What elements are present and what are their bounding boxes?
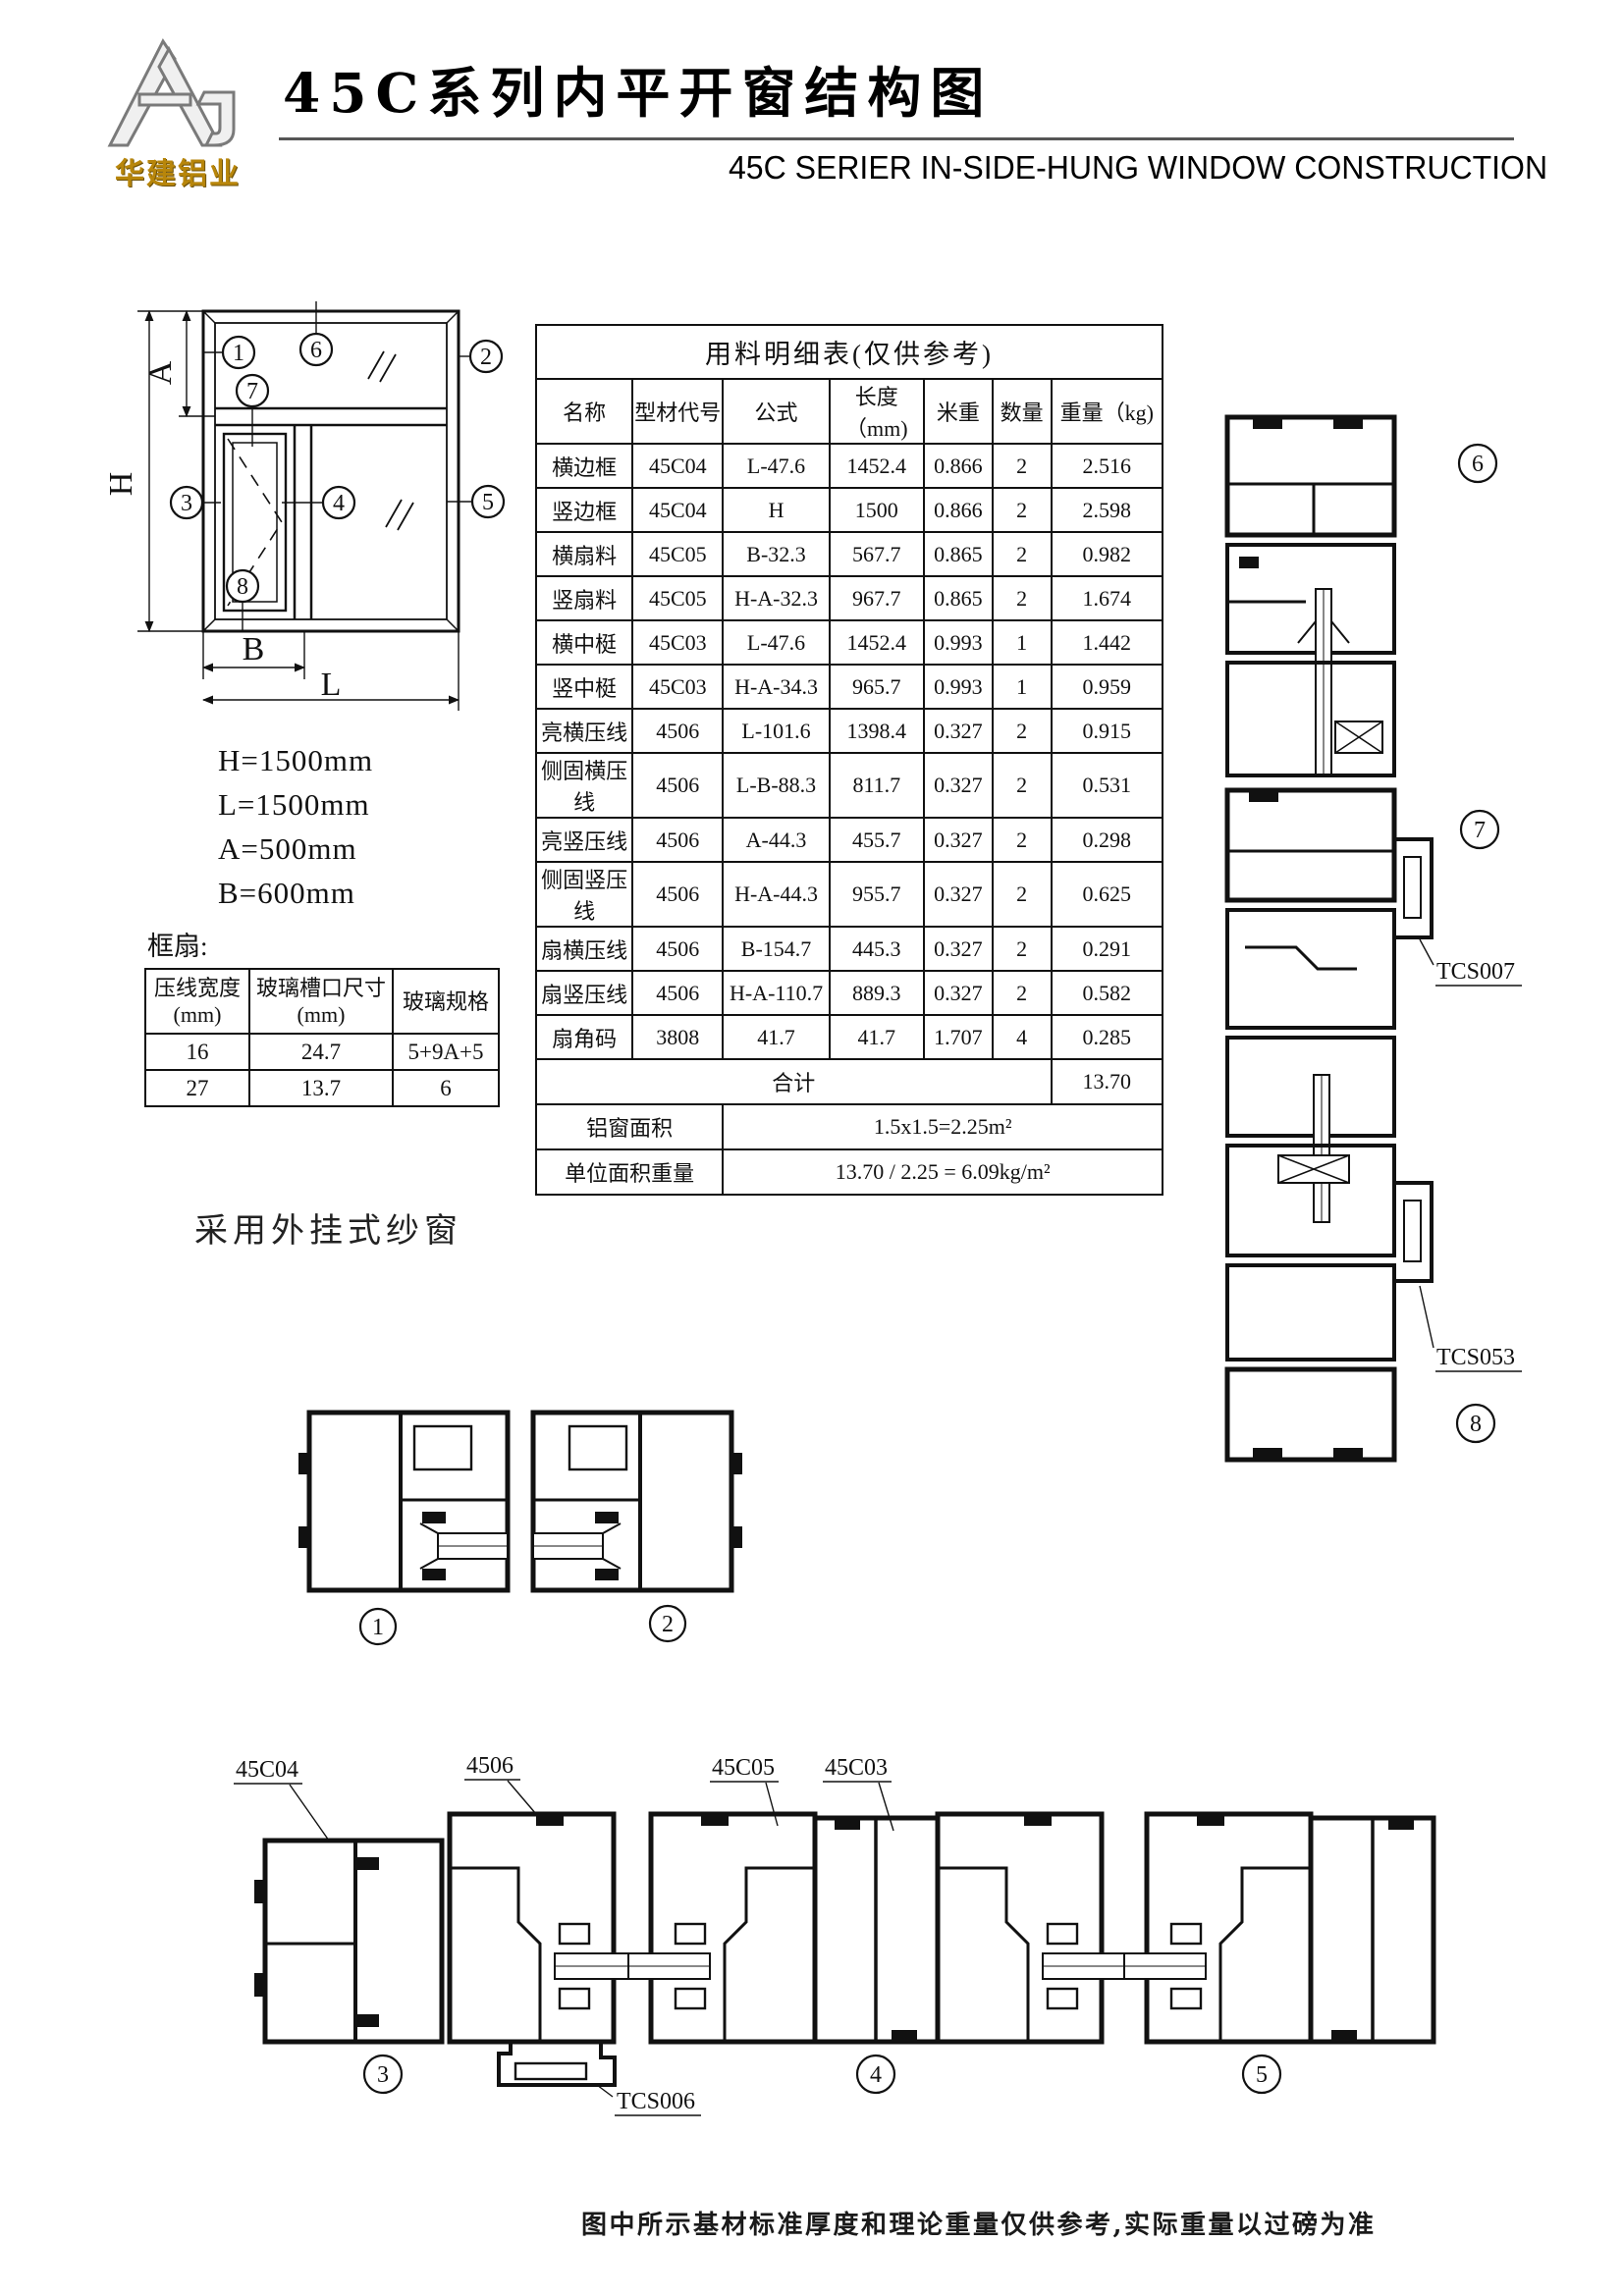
table-cell: L-47.6 [723, 444, 829, 488]
callout-5: 5 [472, 486, 504, 517]
total-value: 13.70 [1052, 1059, 1163, 1104]
table-cell: 45C03 [632, 665, 723, 709]
part-label-45c04: 45C04 [234, 1757, 329, 1841]
table-cell: 2 [993, 488, 1052, 532]
table-cell: 2 [993, 444, 1052, 488]
table-cell: 0.865 [924, 532, 993, 576]
table-cell: B-154.7 [723, 927, 829, 971]
table-row: 扇横压线4506B-154.7445.30.32720.291 [536, 927, 1163, 971]
table-cell: 2.516 [1052, 444, 1163, 488]
table-cell: 2.598 [1052, 488, 1163, 532]
table-cell: H-A-32.3 [723, 576, 829, 620]
materials-table: 用料明细表(仅供参考) 名称 型材代号 公式 长度（mm) 米重 数量 重量（k… [535, 324, 1163, 1196]
svg-text:TCS007: TCS007 [1436, 959, 1515, 985]
svg-text:3: 3 [377, 2062, 389, 2088]
table-cell: 24.7 [249, 1034, 393, 1070]
table-cell: 1398.4 [830, 709, 924, 753]
table-row: 1624.75+9A+5 [145, 1034, 499, 1070]
title-rule [279, 137, 1514, 140]
table-cell: L-B-88.3 [723, 753, 829, 818]
callout-6: 6 [300, 334, 332, 365]
table-cell: 4506 [632, 927, 723, 971]
table-cell: 0.285 [1052, 1015, 1163, 1059]
table-cell: 竖中梃 [536, 665, 632, 709]
table-cell: 1.707 [924, 1015, 993, 1059]
table-cell: 2 [993, 532, 1052, 576]
table-cell: 4 [993, 1015, 1052, 1059]
frame-profile-45c04 [254, 1841, 442, 2042]
company-logo [94, 35, 261, 151]
dim-label-b: B [243, 631, 265, 667]
callout-5-section: 5 [1243, 2056, 1280, 2093]
table-cell: 侧固竖压线 [536, 862, 632, 927]
col-header-weight-per-m: 米重 [924, 379, 993, 444]
table-row: 侧固竖压线4506H-A-44.3955.70.32720.625 [536, 862, 1163, 927]
dim-h-value: H=1500mm [218, 738, 373, 782]
col-header-profile-code: 型材代号 [632, 379, 723, 444]
table-row: 扇角码380841.741.71.70740.285 [536, 1015, 1163, 1059]
table-cell: 1 [993, 665, 1052, 709]
table-row: 亮竖压线4506A-44.3455.70.32720.298 [536, 818, 1163, 862]
svg-text:45C04: 45C04 [236, 1757, 298, 1783]
table-cell: 0.291 [1052, 927, 1163, 971]
callout-4: 4 [323, 487, 354, 518]
table-cell: 0.327 [924, 862, 993, 927]
callout-8: 8 [227, 570, 258, 602]
svg-text:6: 6 [1472, 452, 1484, 477]
table-cell: 横扇料 [536, 532, 632, 576]
table-cell: 13.7 [249, 1070, 393, 1106]
table-cell: 955.7 [830, 862, 924, 927]
svg-text:45C05: 45C05 [712, 1755, 775, 1781]
table-row: 扇竖压线4506H-A-110.7889.30.32720.582 [536, 971, 1163, 1015]
table-cell: 0.582 [1052, 971, 1163, 1015]
table-cell: H-A-44.3 [723, 862, 829, 927]
table-row: 亮横压线4506L-101.61398.40.32720.915 [536, 709, 1163, 753]
callout-1: 1 [223, 337, 254, 368]
svg-text:4: 4 [870, 2062, 882, 2088]
callout-2-section: 2 [650, 1606, 685, 1641]
materials-table-title-row: 用料明细表(仅供参考) [536, 325, 1163, 379]
logo-company-name: 华建铝业 [84, 149, 271, 192]
table-cell: 45C04 [632, 444, 723, 488]
section-6-profile [1227, 417, 1394, 775]
table-cell: 5+9A+5 [393, 1034, 499, 1070]
table-cell: L-101.6 [723, 709, 829, 753]
part-label-tcs053: TCS053 [1435, 1345, 1522, 1371]
frame-sash-table: 压线宽度 (mm) 玻璃槽口尺寸 (mm) 玻璃规格 1624.75+9A+52… [144, 968, 500, 1107]
callout-2: 2 [470, 341, 502, 372]
table-cell: 亮横压线 [536, 709, 632, 753]
svg-text:1: 1 [372, 1615, 384, 1640]
tcs053-bracket [1396, 1183, 1432, 1281]
table-cell: 1.442 [1052, 620, 1163, 665]
materials-table-title: 用料明细表(仅供参考) [536, 325, 1163, 379]
sash-profile-mid [938, 1814, 1124, 2042]
table-cell: 0.982 [1052, 532, 1163, 576]
svg-text:3: 3 [181, 491, 192, 516]
mullion-profile-right [1311, 1818, 1434, 2042]
unit-weight-row: 单位面积重量 13.70 / 2.25 = 6.09kg/m² [536, 1149, 1163, 1195]
horizontal-section-1-2: 1 2 [275, 1394, 785, 1659]
screen-note: 采用外挂式纱窗 [194, 1203, 462, 1252]
table-cell: 0.327 [924, 709, 993, 753]
table-cell: 2 [993, 862, 1052, 927]
table-row: 横扇料45C05B-32.3567.70.86520.982 [536, 532, 1163, 576]
table-cell: 1452.4 [830, 620, 924, 665]
table-cell: 扇竖压线 [536, 971, 632, 1015]
svg-text:2: 2 [480, 345, 492, 370]
horizontal-section-3-4-5: 45C04 4506 45C05 45C03 TCS006 3 4 5 [177, 1747, 1453, 2120]
section-1-profile [298, 1413, 508, 1590]
table-cell: 0.993 [924, 620, 993, 665]
table-cell: 6 [393, 1070, 499, 1106]
table-cell: 45C05 [632, 532, 723, 576]
table-cell: H-A-110.7 [723, 971, 829, 1015]
window-area-row: 铝窗面积 1.5x1.5=2.25m² [536, 1104, 1163, 1149]
part-label-tcs006: TCS006 [615, 2089, 701, 2115]
dim-b-value: B=600mm [218, 871, 373, 915]
table-cell: 横中梃 [536, 620, 632, 665]
frame-sash-header-row: 压线宽度 (mm) 玻璃槽口尺寸 (mm) 玻璃规格 [145, 969, 499, 1034]
table-row: 竖边框45C04H15000.86622.598 [536, 488, 1163, 532]
table-cell: H [723, 488, 829, 532]
table-cell: 亮竖压线 [536, 818, 632, 862]
table-cell: L-47.6 [723, 620, 829, 665]
table-cell: 0.625 [1052, 862, 1163, 927]
callout-7: 7 [237, 375, 268, 406]
callout-4-section: 4 [857, 2056, 894, 2093]
table-cell: 2 [993, 927, 1052, 971]
dim-a-value: A=500mm [218, 827, 373, 871]
table-cell: 45C05 [632, 576, 723, 620]
part-label-4506: 4506 [464, 1753, 536, 1814]
table-cell: B-32.3 [723, 532, 829, 576]
svg-text:45C03: 45C03 [825, 1755, 888, 1781]
page-title: 45C系列内平开窗结构图 [283, 49, 993, 128]
col-header-weight: 重量（kg) [1052, 379, 1163, 444]
table-cell: 0.865 [924, 576, 993, 620]
table-cell: 1.674 [1052, 576, 1163, 620]
svg-text:5: 5 [1256, 2062, 1268, 2088]
tcs007-bracket [1396, 839, 1432, 937]
svg-text:8: 8 [237, 574, 248, 600]
col-header-length: 长度（mm) [830, 379, 924, 444]
table-row: 横中梃45C03L-47.61452.40.99311.442 [536, 620, 1163, 665]
table-row: 竖扇料45C05H-A-32.3967.70.86521.674 [536, 576, 1163, 620]
sash-profile-mirror-1 [628, 1814, 815, 2042]
table-cell: 2 [993, 709, 1052, 753]
sash-profile-mirror-2 [1124, 1814, 1311, 2042]
table-cell: 4506 [632, 862, 723, 927]
svg-text:1: 1 [233, 341, 244, 366]
table-row: 横边框45C04L-47.61452.40.86622.516 [536, 444, 1163, 488]
table-cell: 2 [993, 753, 1052, 818]
svg-text:7: 7 [246, 379, 258, 404]
table-row: 侧固横压线4506L-B-88.3811.70.32720.531 [536, 753, 1163, 818]
col-header-bead-width: 压线宽度 (mm) [145, 969, 249, 1034]
table-cell: 41.7 [830, 1015, 924, 1059]
table-row: 2713.76 [145, 1070, 499, 1106]
table-cell: 0.531 [1052, 753, 1163, 818]
col-header-qty: 数量 [993, 379, 1052, 444]
table-cell: 45C03 [632, 620, 723, 665]
svg-text:4: 4 [333, 491, 345, 516]
materials-table-header-row: 名称 型材代号 公式 长度（mm) 米重 数量 重量（kg) [536, 379, 1163, 444]
table-cell: 567.7 [830, 532, 924, 576]
table-cell: 竖边框 [536, 488, 632, 532]
mullion-profile-45c03 [815, 1818, 938, 2042]
window-area-value: 1.5x1.5=2.25m² [723, 1104, 1163, 1149]
table-cell: 0.327 [924, 927, 993, 971]
table-cell: 3808 [632, 1015, 723, 1059]
drawing-sheet: 华建铝业 45C系列内平开窗结构图 45C SERIER IN-SIDE-HUN… [0, 0, 1623, 2296]
window-area-label: 铝窗面积 [536, 1104, 723, 1149]
callout-8-section: 8 [1457, 1405, 1494, 1442]
table-cell: 1452.4 [830, 444, 924, 488]
svg-text:4506: 4506 [466, 1753, 514, 1779]
col-header-formula: 公式 [723, 379, 829, 444]
svg-text:TCS006: TCS006 [617, 2089, 695, 2114]
table-cell: 2 [993, 576, 1052, 620]
table-cell: 967.7 [830, 576, 924, 620]
table-cell: 0.327 [924, 971, 993, 1015]
svg-text:6: 6 [310, 338, 322, 363]
table-cell: 侧固横压线 [536, 753, 632, 818]
svg-text:7: 7 [1474, 818, 1486, 843]
table-cell: 竖扇料 [536, 576, 632, 620]
sash-profile-left [450, 1814, 636, 2042]
glass-hatch-marks [368, 351, 413, 530]
table-cell: 45C04 [632, 488, 723, 532]
table-cell: 16 [145, 1034, 249, 1070]
callout-6-section: 6 [1459, 445, 1496, 482]
total-row: 合计 13.70 [536, 1059, 1163, 1104]
table-cell: 811.7 [830, 753, 924, 818]
footer-note: 图中所示基材标准厚度和理论重量仅供参考,实际重量以过磅为准 [581, 2205, 1377, 2241]
table-cell: 889.3 [830, 971, 924, 1015]
table-cell: 4506 [632, 971, 723, 1015]
svg-text:2: 2 [662, 1612, 674, 1637]
table-cell: 0.915 [1052, 709, 1163, 753]
table-cell: 0.327 [924, 818, 993, 862]
dimension-values: H=1500mm L=1500mm A=500mm B=600mm [218, 738, 373, 915]
dimension-letters: H A B L [103, 360, 341, 703]
tcs006-drip-profile [499, 2042, 615, 2097]
unit-weight-label: 单位面积重量 [536, 1149, 723, 1195]
table-cell: 965.7 [830, 665, 924, 709]
table-cell: 4506 [632, 818, 723, 862]
table-cell: 0.959 [1052, 665, 1163, 709]
window-elevation-diagram: H A B L 1 6 2 7 3 4 5 8 [88, 294, 511, 717]
callout-1-section: 1 [360, 1609, 396, 1644]
dim-label-l: L [321, 667, 342, 703]
callout-3-section: 3 [364, 2056, 402, 2093]
table-cell: 0.993 [924, 665, 993, 709]
svg-text:8: 8 [1470, 1412, 1482, 1437]
part-label-tcs007: TCS007 [1435, 959, 1522, 986]
table-cell: 1500 [830, 488, 924, 532]
vertical-section-details: TCS007 TCS053 6 7 8 [1188, 398, 1620, 1477]
table-cell: 0.866 [924, 488, 993, 532]
table-cell: 横边框 [536, 444, 632, 488]
frame-sash-label: 框扇: [147, 925, 208, 963]
table-cell: 0.866 [924, 444, 993, 488]
table-cell: 1 [993, 620, 1052, 665]
callout-3: 3 [171, 487, 202, 518]
logo-crossbar [139, 94, 190, 105]
table-cell: 41.7 [723, 1015, 829, 1059]
table-row: 竖中梃45C03H-A-34.3965.70.99310.959 [536, 665, 1163, 709]
dim-l-value: L=1500mm [218, 782, 373, 827]
total-label: 合计 [536, 1059, 1052, 1104]
svg-text:5: 5 [482, 490, 494, 515]
page-subtitle: 45C SERIER IN-SIDE-HUNG WINDOW CONSTRUCT… [729, 149, 1419, 187]
dim-label-h: H [103, 472, 139, 497]
table-cell: 455.7 [830, 818, 924, 862]
table-cell: 4506 [632, 753, 723, 818]
table-cell: 27 [145, 1070, 249, 1106]
table-cell: 扇角码 [536, 1015, 632, 1059]
table-cell: 0.327 [924, 753, 993, 818]
svg-text:TCS053: TCS053 [1436, 1345, 1515, 1370]
section-2-profile [533, 1413, 742, 1590]
table-cell: 445.3 [830, 927, 924, 971]
table-cell: 0.298 [1052, 818, 1163, 862]
table-cell: H-A-34.3 [723, 665, 829, 709]
table-cell: A-44.3 [723, 818, 829, 862]
table-cell: 4506 [632, 709, 723, 753]
table-cell: 扇横压线 [536, 927, 632, 971]
table-cell: 2 [993, 971, 1052, 1015]
callout-7-section: 7 [1461, 811, 1498, 848]
col-header-name: 名称 [536, 379, 632, 444]
table-cell: 2 [993, 818, 1052, 862]
dim-label-a: A [142, 360, 179, 385]
col-header-glass-spec: 玻璃规格 [393, 969, 499, 1034]
col-header-glass-slot: 玻璃槽口尺寸 (mm) [249, 969, 393, 1034]
unit-weight-value: 13.70 / 2.25 = 6.09kg/m² [723, 1149, 1163, 1195]
